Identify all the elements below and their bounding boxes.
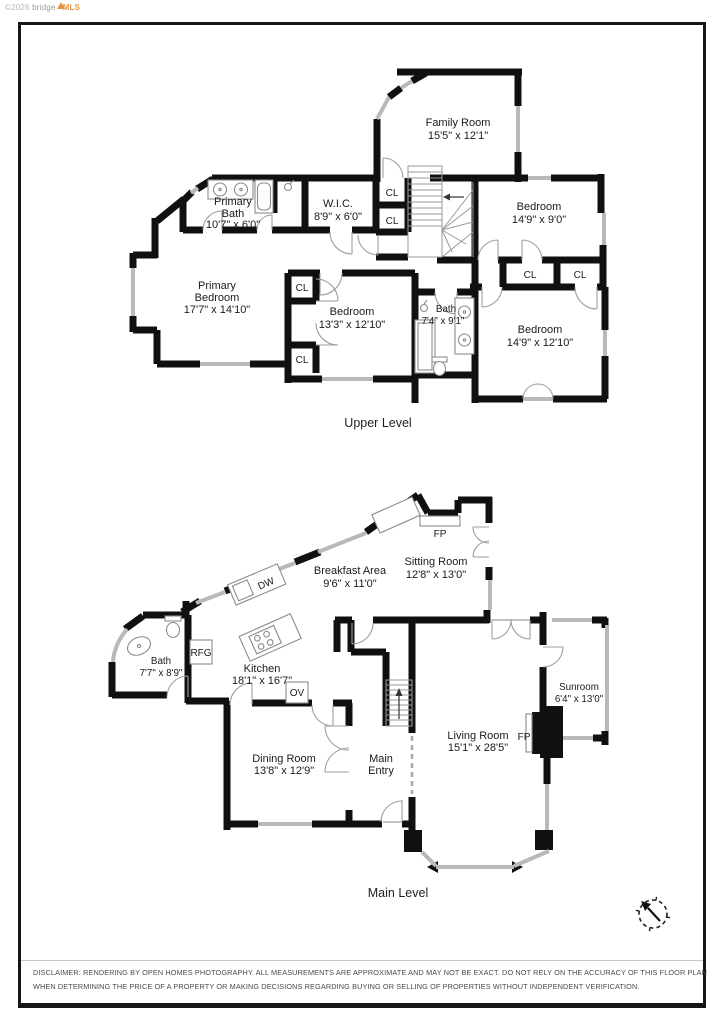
room-label-primary-bath: Primary Bath 10'7" x 6'0" <box>206 196 260 231</box>
svg-text:Living Room: Living Room <box>447 730 508 742</box>
watermark-copyright: ©2026 <box>5 3 30 12</box>
room-label-bedroom-mid: Bedroom 13'3" x 12'10" <box>319 306 386 331</box>
upper-level-plan: CL CL CL CL CL CL Family Room 15'5" x 12… <box>133 72 607 430</box>
svg-text:6'4" x 13'0": 6'4" x 13'0" <box>555 694 604 705</box>
closet-label: CL <box>296 283 309 294</box>
svg-text:18'1" x 16'7": 18'1" x 16'7" <box>232 675 292 687</box>
svg-text:12'8" x 13'0": 12'8" x 13'0" <box>406 569 466 581</box>
svg-text:13'3" x 12'10": 13'3" x 12'10" <box>319 319 386 331</box>
svg-text:Bath: Bath <box>151 656 171 667</box>
room-label-main-entry: Main Entry <box>368 753 394 777</box>
svg-text:Bedroom: Bedroom <box>330 306 375 318</box>
upper-level-caption: Upper Level <box>344 416 411 430</box>
svg-text:10'7" x 6'0": 10'7" x 6'0" <box>206 219 260 231</box>
svg-text:FP: FP <box>434 529 447 540</box>
room-label-bedroom-se: Bedroom 14'9" x 12'10" <box>507 324 574 349</box>
living-fireplace-block <box>540 706 563 758</box>
stairs-direction-arrow <box>396 688 403 696</box>
watermark: ©2026 bridgeMLS <box>5 3 80 12</box>
dishwasher-counter: DW <box>228 564 286 605</box>
room-label-wic: W.I.C. 8'9" x 6'0" <box>314 198 362 223</box>
svg-text:Kitchen: Kitchen <box>244 663 281 675</box>
svg-text:15'1" x 28'5": 15'1" x 28'5" <box>448 742 508 754</box>
bay-corner-block <box>535 830 553 850</box>
bay-corner-block <box>404 830 422 852</box>
svg-text:Family Room: Family Room <box>426 117 491 129</box>
compass-icon <box>632 893 674 935</box>
room-label-main-bath: Bath 7'7" x 8'9" <box>140 656 183 679</box>
svg-text:Main: Main <box>369 753 393 765</box>
svg-text:RFG: RFG <box>190 648 211 659</box>
refrigerator: RFG <box>190 640 212 664</box>
svg-text:13'8" x 12'9": 13'8" x 12'9" <box>254 765 314 777</box>
room-label-breakfast-area: Breakfast Area 9'6" x 11'0" <box>314 565 387 590</box>
main-walls <box>112 495 607 842</box>
svg-text:Bedroom: Bedroom <box>195 292 240 304</box>
svg-text:Bath: Bath <box>436 304 456 315</box>
room-label-sitting-room: Sitting Room 12'8" x 13'0" <box>405 556 468 581</box>
svg-text:14'9" x 9'0": 14'9" x 9'0" <box>512 214 566 226</box>
svg-text:Sitting Room: Sitting Room <box>405 556 468 568</box>
svg-text:Dining Room: Dining Room <box>252 753 316 765</box>
main-level-plan: RFG OV DW FP FP <box>112 495 607 900</box>
door-sills <box>383 620 530 822</box>
svg-text:14'9" x 12'10": 14'9" x 12'10" <box>507 337 574 349</box>
disclaimer: DISCLAIMER: RENDERING BY OPEN HOMES PHOT… <box>21 960 703 997</box>
kitchen-island <box>239 614 301 661</box>
svg-text:7'4" x 9'1": 7'4" x 9'1" <box>422 316 465 327</box>
svg-text:8'9" x 6'0": 8'9" x 6'0" <box>314 211 362 223</box>
main-stairs-icon <box>386 680 412 726</box>
disclaimer-line-2: WHEN DETERMINING THE PRICE OF A PROPERTY… <box>33 980 691 994</box>
svg-text:Bedroom: Bedroom <box>517 201 562 213</box>
sitting-fireplace: FP <box>420 516 460 540</box>
disclaimer-line-1: DISCLAIMER: RENDERING BY OPEN HOMES PHOT… <box>33 966 691 980</box>
room-label-living-room: Living Room 15'1" x 28'5" <box>447 730 508 754</box>
room-label-dining-room: Dining Room 13'8" x 12'9" <box>252 753 316 777</box>
closet-label: CL <box>524 270 537 281</box>
room-label-bedroom-ne: Bedroom 14'9" x 9'0" <box>512 201 566 226</box>
room-label-family-room: Family Room 15'5" x 12'1" <box>426 117 491 142</box>
watermark-brand-bold: MLS <box>63 3 81 12</box>
svg-text:Primary: Primary <box>198 280 236 292</box>
svg-text:15'5" x 12'1": 15'5" x 12'1" <box>428 130 488 142</box>
svg-text:17'7" x 14'10": 17'7" x 14'10" <box>184 304 251 316</box>
watermark-brand: bridge <box>32 3 55 12</box>
corner-cabinet <box>372 497 420 533</box>
upper-windows <box>133 81 605 399</box>
closet-label: CL <box>386 216 399 227</box>
living-fireplace-label: FP <box>518 732 531 743</box>
living-fireplace-block <box>532 712 541 754</box>
room-label-primary-bedroom: Primary Bedroom 17'7" x 14'10" <box>184 280 251 316</box>
upper-walls <box>133 72 607 403</box>
svg-text:Bedroom: Bedroom <box>518 324 563 336</box>
svg-text:Primary: Primary <box>214 196 252 208</box>
svg-text:Breakfast Area: Breakfast Area <box>314 565 387 577</box>
floor-plan-drawing: CL CL CL CL CL CL Family Room 15'5" x 12… <box>0 0 724 1024</box>
closet-label: CL <box>296 355 309 366</box>
svg-text:W.I.C.: W.I.C. <box>323 198 353 210</box>
main-level-caption: Main Level <box>368 886 428 900</box>
svg-text:Sunroom: Sunroom <box>559 682 599 693</box>
svg-text:OV: OV <box>290 688 305 699</box>
closet-label: CL <box>574 270 587 281</box>
stairs-direction-arrow <box>443 194 450 201</box>
svg-text:7'7" x 8'9": 7'7" x 8'9" <box>140 668 183 679</box>
room-label-kitchen: Kitchen 18'1" x 16'7" <box>232 663 292 687</box>
bath-curved-window <box>113 629 127 662</box>
svg-text:Entry: Entry <box>368 765 394 777</box>
svg-text:9'6" x 11'0": 9'6" x 11'0" <box>323 578 376 590</box>
room-label-sunroom: Sunroom 6'4" x 13'0" <box>555 682 604 705</box>
floor-plan-page: { "watermark": {"copyright": "©2026", "b… <box>0 0 724 1024</box>
closet-label: CL <box>386 188 399 199</box>
brand-logo-icon <box>57 2 65 9</box>
